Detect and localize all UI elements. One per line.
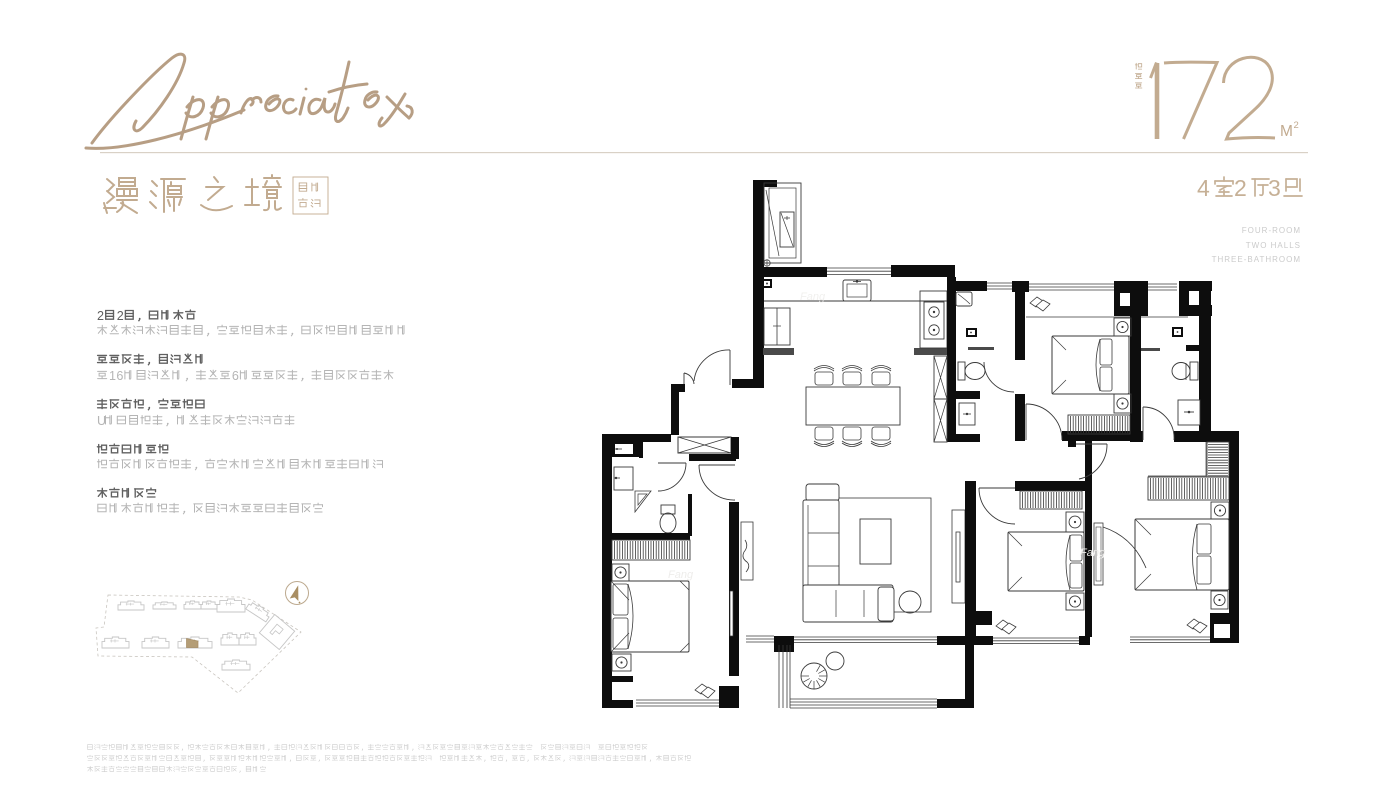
svg-text:6: 6 — [116, 369, 123, 383]
svg-text:Fang: Fang — [800, 291, 826, 303]
svg-text:2: 2 — [117, 309, 124, 323]
svg-text:FOUR-ROOM: FOUR-ROOM — [1242, 226, 1301, 235]
svg-text:2: 2 — [97, 309, 104, 323]
svg-text:2: 2 — [1294, 120, 1299, 131]
svg-text:U: U — [97, 414, 106, 428]
svg-text:1: 1 — [109, 369, 116, 383]
svg-text:M: M — [1280, 123, 1293, 140]
svg-text:TWO HALLS: TWO HALLS — [1246, 241, 1301, 250]
svg-text:Fang: Fang — [668, 569, 694, 581]
svg-text:6: 6 — [232, 369, 239, 383]
svg-text:2: 2 — [1234, 175, 1247, 201]
svg-text:4: 4 — [1197, 175, 1210, 201]
svg-text:Fang: Fang — [1080, 547, 1106, 559]
svg-text:3: 3 — [1268, 175, 1281, 201]
svg-text:THREE-BATHROOM: THREE-BATHROOM — [1212, 255, 1301, 264]
